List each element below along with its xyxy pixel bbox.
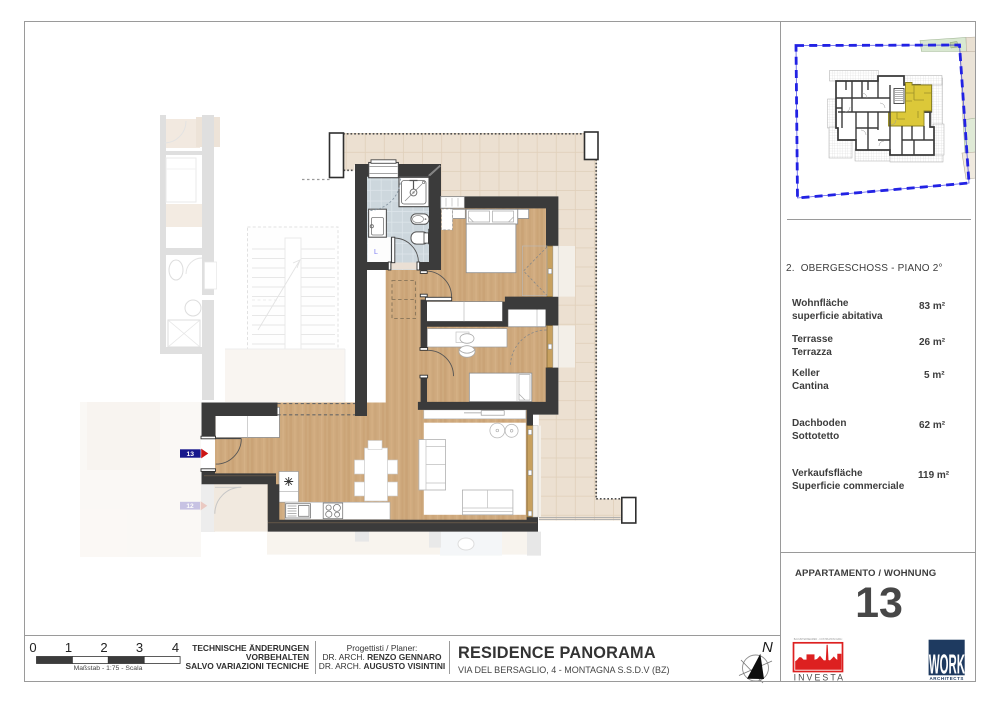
svg-text:BAUUNTERNEHMEN - COSTRUZIONI E: BAUUNTERNEHMEN - COSTRUZIONI EDILI <box>794 637 843 641</box>
svg-text:13: 13 <box>187 451 195 458</box>
svg-text:N: N <box>762 639 773 656</box>
svg-text:L: L <box>374 249 378 256</box>
svg-text:12: 12 <box>186 503 194 510</box>
